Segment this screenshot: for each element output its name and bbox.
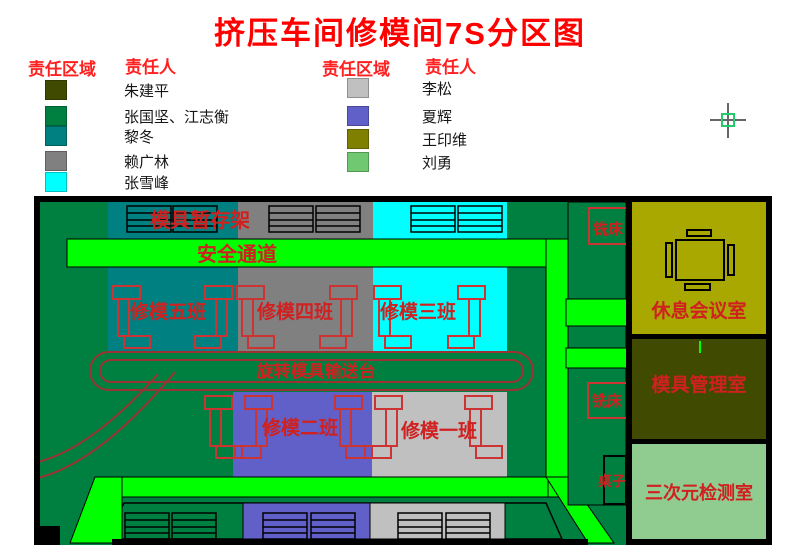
mold-mgmt-room-label: 模具管理室	[651, 373, 746, 396]
milling-label-mid: 铣床	[592, 392, 623, 410]
class1-label: 修模一班	[400, 419, 477, 442]
passage-vertical	[546, 239, 568, 497]
class4-label: 修模四班	[256, 300, 333, 323]
class2-label: 修模二班	[261, 416, 338, 439]
workshop-7s-zoning-page: { "title": "挤压车间修模间7S分区图", "colors": { "…	[0, 0, 800, 553]
zone-class3	[373, 202, 507, 352]
meeting-room-label: 休息会议室	[650, 299, 746, 322]
floor-plan: 模具暂存架 安全通道 修模五班 修模四班 修模三班 旋转模具输送台 修模二班 修…	[0, 0, 800, 553]
passage-bottom	[95, 477, 548, 497]
corner-pillar	[36, 526, 60, 541]
desk-label: 桌子	[598, 473, 626, 490]
conveyor-label: 旋转模具输送台	[256, 361, 376, 381]
class5-label: 修模五班	[129, 300, 206, 323]
safety-channel	[67, 239, 566, 267]
storage-rack-label: 模具暂存架	[150, 208, 250, 232]
safety-channel-label: 安全通道	[197, 242, 277, 266]
cmm-room-label: 三次元检测室	[645, 482, 753, 503]
crosshair-cursor	[710, 103, 746, 138]
class3-label: 修模三班	[379, 300, 456, 323]
milling-label-top: 铣床	[593, 220, 624, 238]
passage-stub-lower	[566, 348, 628, 368]
passage-stub-meeting	[566, 299, 628, 326]
